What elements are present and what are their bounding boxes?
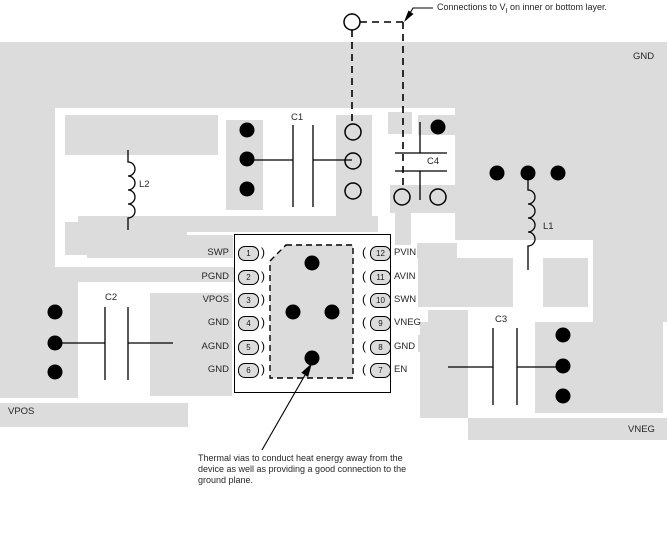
copper-c4-topleft-pad xyxy=(388,112,412,134)
copper-c4-stub xyxy=(395,213,411,245)
label-gnd-plane: GND xyxy=(633,51,654,62)
pin-label-pvin: PVIN xyxy=(394,247,416,259)
pin-arc-icon: ) xyxy=(261,292,265,307)
label-l2: L2 xyxy=(139,179,150,190)
label-c3: C3 xyxy=(495,314,507,325)
pin-arc-icon: ) xyxy=(261,245,265,260)
pin-label-swn: SWN xyxy=(394,294,416,306)
copper-c1-left-pad xyxy=(226,120,263,210)
pin-label-gnd4: GND xyxy=(150,317,229,329)
copper-vneg-pin-trace xyxy=(428,310,468,327)
pin-pad-4: 4 xyxy=(238,316,259,331)
pin-pad-1: 1 xyxy=(238,246,259,261)
copper-right-strip xyxy=(593,240,667,322)
pin-pad-11: 11 xyxy=(370,270,391,285)
copper-l2-top-pad xyxy=(65,115,218,155)
copper-left-column-lower xyxy=(0,280,78,398)
pcb-layout-figure: 1 2 3 4 5 6 12 11 10 9 8 7 ) ) ) ) ) ) (… xyxy=(0,0,667,547)
pin-arc-icon: ) xyxy=(261,339,265,354)
top-annotation: Connections to VI on inner or bottom lay… xyxy=(437,2,607,17)
pin-arc-icon: ) xyxy=(261,269,265,284)
pin-pad-5: 5 xyxy=(238,340,259,355)
top-note-leader-line xyxy=(406,8,433,20)
label-c1: C1 xyxy=(291,112,303,123)
pin-arc-icon: ( xyxy=(362,292,366,307)
pin-arc-icon: ) xyxy=(261,362,265,377)
pin-pad-9: 9 xyxy=(370,316,391,331)
label-l1: L1 xyxy=(543,221,554,232)
pin-label-en: EN xyxy=(394,364,407,376)
copper-left-column-upper xyxy=(0,108,55,280)
pin-arc-icon: ( xyxy=(362,269,366,284)
copper-c4-bottom-pad xyxy=(390,185,460,213)
pin-arc-icon: ( xyxy=(362,339,366,354)
pin-label-pgnd: PGND xyxy=(150,271,229,283)
copper-mid-island-right xyxy=(543,258,588,307)
pin-label-swp: SWP xyxy=(150,247,229,259)
copper-mid-island-left xyxy=(418,258,513,307)
thermal-annotation-line3: ground plane. xyxy=(198,475,253,486)
copper-right-gnd-plane xyxy=(455,108,667,240)
pin-label-vneg: VNEG xyxy=(394,317,421,329)
pin-label-avin: AVIN xyxy=(394,271,415,283)
pin-label-gnd6: GND xyxy=(150,364,229,376)
pin-pad-10: 10 xyxy=(370,293,391,308)
top-note-arrowhead xyxy=(404,11,414,23)
pin-pad-2: 2 xyxy=(238,270,259,285)
pin-arc-icon: ( xyxy=(362,245,366,260)
copper-pvin-trace xyxy=(417,243,457,258)
pin-arc-icon: ( xyxy=(362,315,366,330)
label-c2: C2 xyxy=(105,292,117,303)
top-annotation-prefix: Connections to V xyxy=(437,2,506,12)
top-annotation-suffix: on inner or bottom layer. xyxy=(508,2,608,12)
signal-via-top xyxy=(344,14,360,30)
thermal-annotation-line1: Thermal vias to conduct heat energy away… xyxy=(198,453,403,464)
pin-pad-6: 6 xyxy=(238,363,259,378)
pin-label-agnd: AGND xyxy=(150,341,229,353)
label-vpos-plane: VPOS xyxy=(8,406,34,417)
pin-pad-12: 12 xyxy=(370,246,391,261)
pin-pad-8: 8 xyxy=(370,340,391,355)
copper-c4-topright-pad xyxy=(418,115,460,135)
copper-gnd8-stub xyxy=(418,335,468,352)
copper-c1-right-pad xyxy=(336,115,372,232)
pin-pad-7: 7 xyxy=(370,363,391,378)
label-vneg-plane: VNEG xyxy=(628,424,655,435)
copper-swp-horizontal-trace xyxy=(78,216,378,232)
pin-arc-icon: ) xyxy=(261,315,265,330)
pin-label-vpos: VPOS xyxy=(150,294,229,306)
pin-label-gnd8: GND xyxy=(394,341,415,353)
label-c4: C4 xyxy=(427,156,439,167)
pin-arc-icon: ( xyxy=(362,362,366,377)
pin-pad-3: 3 xyxy=(238,293,259,308)
thermal-annotation-line2: device as well as providing a good conne… xyxy=(198,464,406,475)
copper-c3-right-block xyxy=(535,322,663,413)
copper-top-gnd-band xyxy=(0,42,667,108)
